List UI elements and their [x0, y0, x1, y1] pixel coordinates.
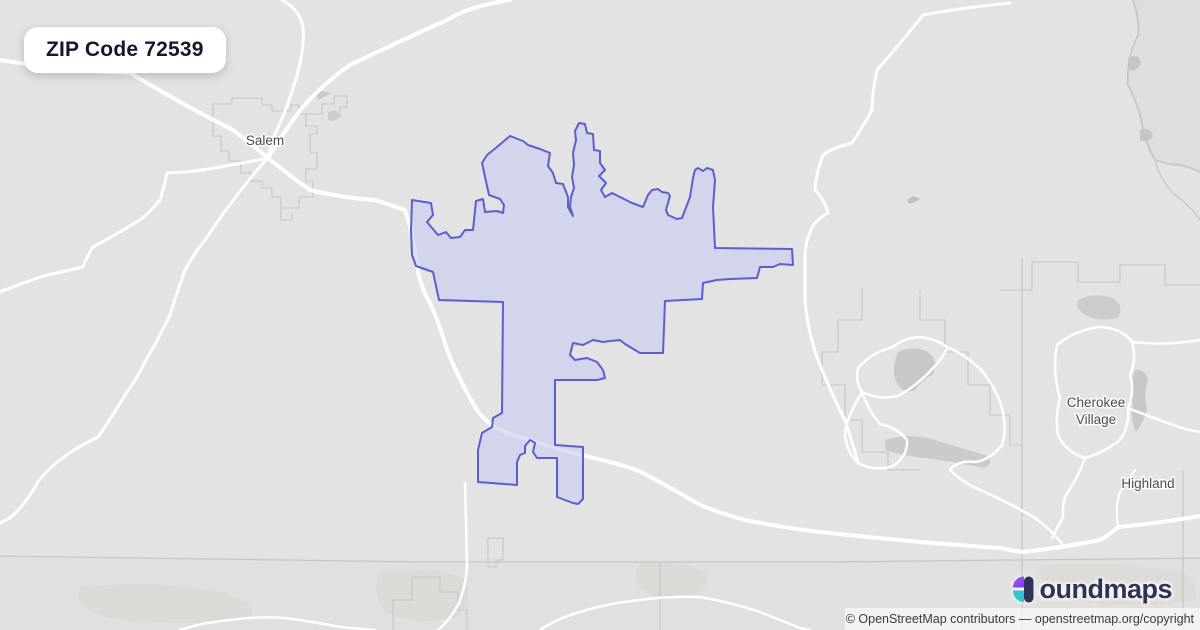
map-page: SalemCherokeeVillageHighland ZIP Code 72… [0, 0, 1200, 630]
map-canvas[interactable]: SalemCherokeeVillageHighland [0, 0, 1200, 630]
place-label: Cherokee [1067, 395, 1126, 410]
boundmaps-logo[interactable]: oundmaps [1010, 575, 1172, 604]
boundmaps-wordmark: oundmaps [1039, 576, 1172, 603]
attribution-bar: © OpenStreetMap contributors — openstree… [845, 608, 1200, 630]
boundmaps-b-icon [1010, 575, 1036, 604]
place-label: Village [1076, 412, 1116, 427]
zip-title-card: ZIP Code 72539 [24, 27, 226, 73]
zip-title-label: ZIP Code 72539 [46, 38, 204, 61]
attribution-link[interactable]: © OpenStreetMap contributors — openstree… [846, 612, 1194, 626]
place-label: Highland [1121, 476, 1174, 491]
place-label: Salem [246, 133, 284, 148]
